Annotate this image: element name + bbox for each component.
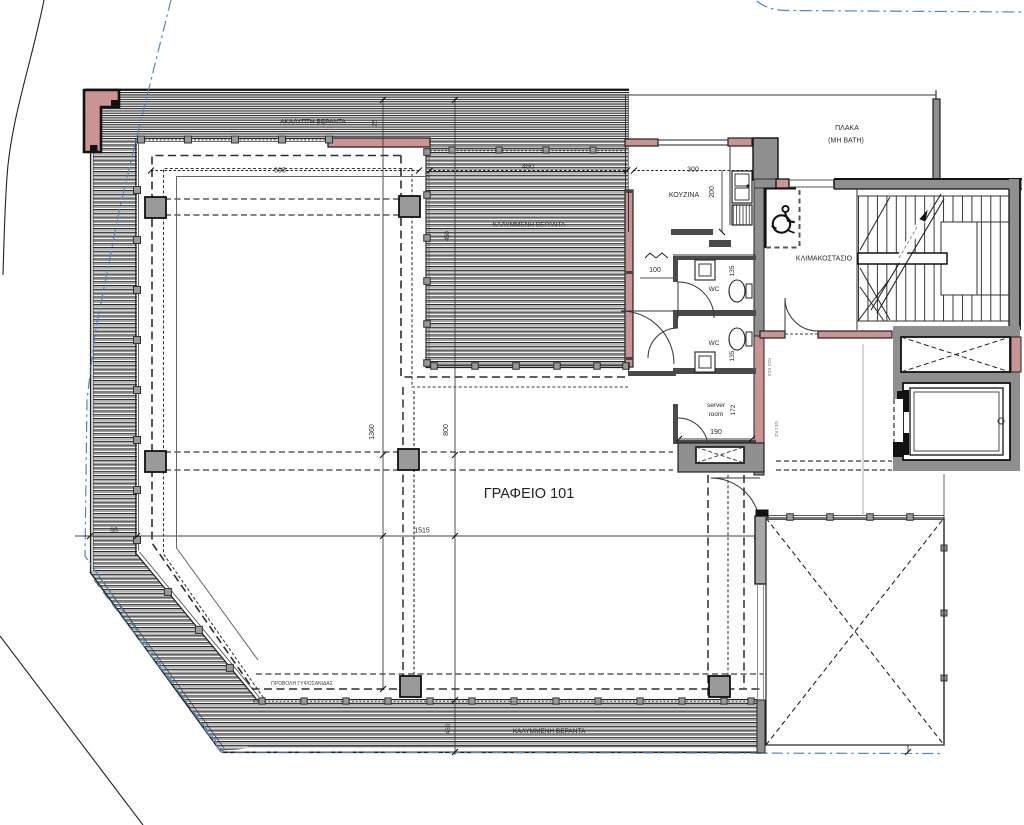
svg-text:ΠΡΟΒΟΛΗ ΓΥΨΟΣΑΝΙΔΑΣ: ΠΡΟΒΟΛΗ ΓΥΨΟΣΑΝΙΔΑΣ <box>271 681 333 687</box>
svg-text:ΠΛΑΚΑ: ΠΛΑΚΑ <box>835 125 859 132</box>
svg-text:ΚΣ2 ΚΣ3: ΚΣ2 ΚΣ3 <box>767 358 772 376</box>
svg-text:190: 190 <box>710 429 722 436</box>
svg-text:server: server <box>707 402 726 409</box>
svg-text:172: 172 <box>730 404 737 415</box>
svg-text:25: 25 <box>373 119 379 126</box>
svg-text:WC: WC <box>709 286 720 293</box>
svg-text:1360: 1360 <box>369 424 376 440</box>
svg-text:WC: WC <box>709 340 720 347</box>
svg-text:room: room <box>709 411 724 418</box>
svg-text:200: 200 <box>709 186 716 198</box>
svg-text:ΚΑΛΥΜΜΕΝΗ ΒΕΡΑΝΤΑ: ΚΑΛΥΜΜΕΝΗ ΒΕΡΑΝΤΑ <box>513 728 586 735</box>
svg-text:ΘΣ1 ΚΣ: ΘΣ1 ΚΣ <box>774 421 779 437</box>
svg-text:300: 300 <box>687 167 699 174</box>
svg-text:450: 450 <box>446 723 452 734</box>
svg-text:800: 800 <box>443 424 450 436</box>
svg-text:135: 135 <box>729 265 736 276</box>
svg-text:1515: 1515 <box>414 528 430 535</box>
svg-text:480: 480 <box>522 164 534 171</box>
svg-text:(ΜΗ ΒΑΤΗ): (ΜΗ ΒΑΤΗ) <box>828 138 864 145</box>
svg-text:ΚΛΙΜΑΚΟΣΤΑΣΙΟ: ΚΛΙΜΑΚΟΣΤΑΣΙΟ <box>796 256 853 263</box>
svg-text:100: 100 <box>649 267 661 274</box>
svg-text:135: 135 <box>729 350 736 361</box>
svg-text:ΚΑΛΥΜΜΕΝΗ ΒΕΡΑΝΤΑ: ΚΑΛΥΜΜΕΝΗ ΒΕΡΑΝΤΑ <box>493 222 566 229</box>
svg-text:95: 95 <box>110 528 118 535</box>
svg-text:ΓΡΑΦΕΙΟ 101: ΓΡΑΦΕΙΟ 101 <box>484 486 575 502</box>
svg-text:ΑΚΑΛΥΠΤΗ ΒΕΡΑΝΤΑ: ΑΚΑΛΥΠΤΗ ΒΕΡΑΝΤΑ <box>280 119 346 126</box>
svg-text:450: 450 <box>445 230 451 241</box>
svg-text:695: 695 <box>274 168 286 175</box>
svg-text:ΚΟΥΖΙΝΑ: ΚΟΥΖΙΝΑ <box>669 192 700 199</box>
